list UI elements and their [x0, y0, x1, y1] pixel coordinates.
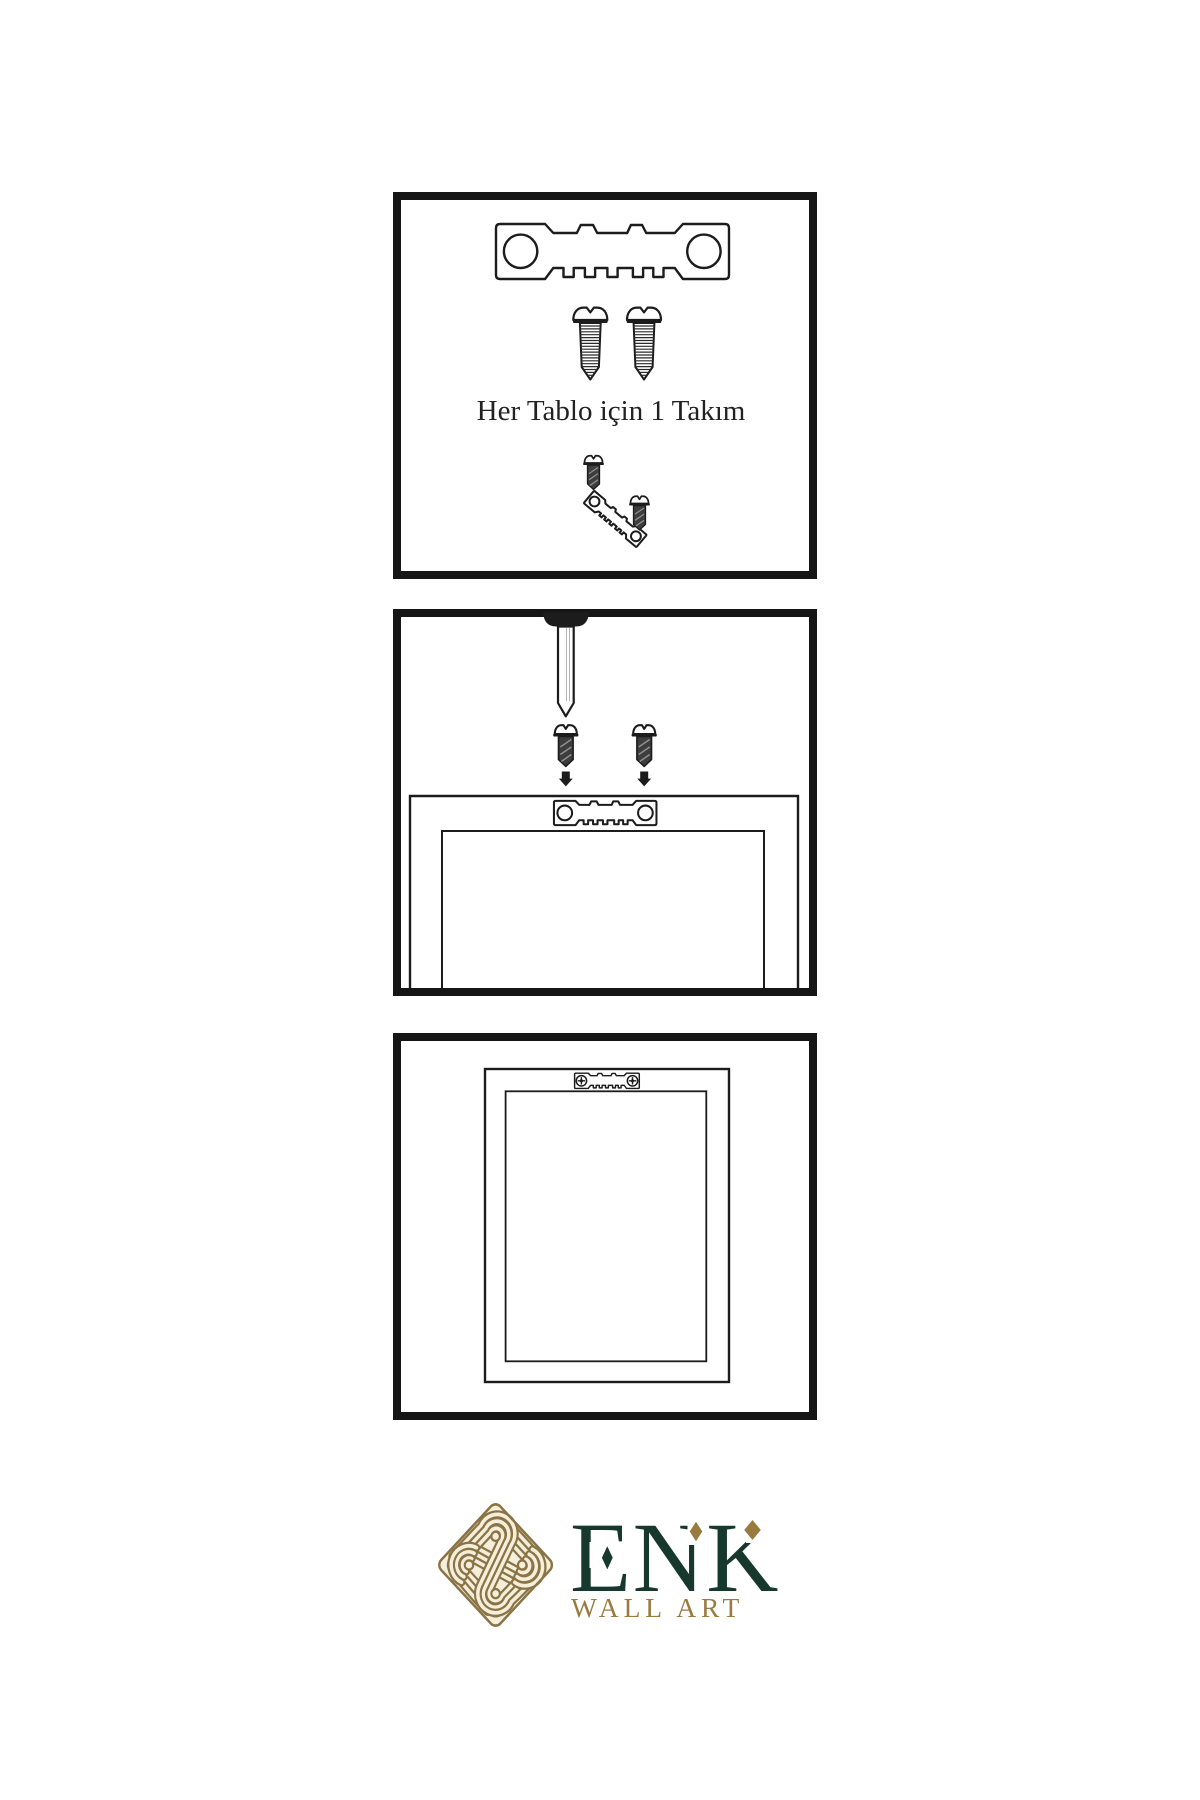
svg-text:WALL ART: WALL ART [571, 1592, 744, 1623]
svg-text:Her Tablo için 1 Takım: Her Tablo için 1 Takım [477, 395, 746, 427]
